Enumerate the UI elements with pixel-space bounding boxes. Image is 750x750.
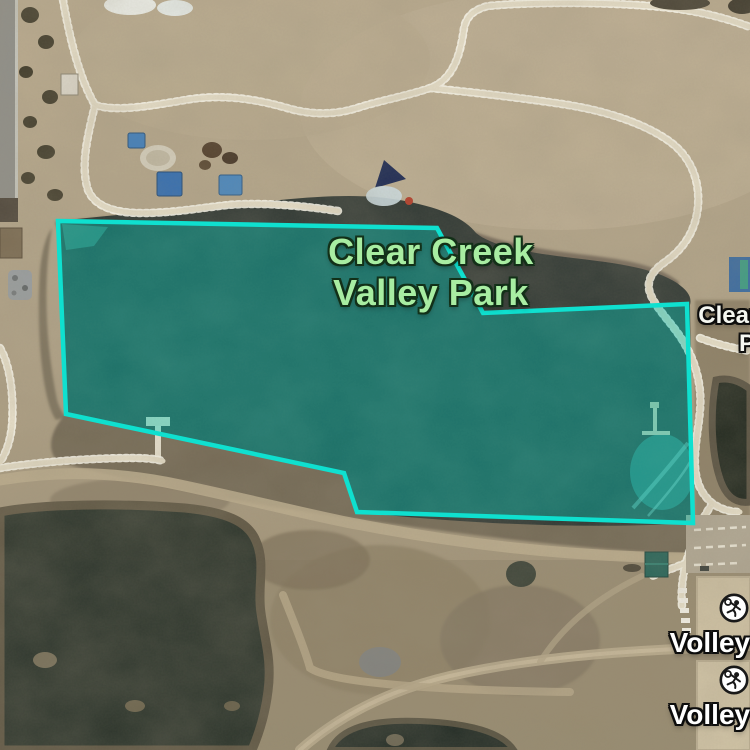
satellite-basemap (0, 0, 750, 750)
poi-label-volleyball-2: Volleyball (670, 699, 750, 731)
poi-label-volleyball-1: Volleyball (670, 627, 750, 659)
volleyball-player-icon[interactable] (718, 664, 750, 696)
satellite-map-canvas[interactable]: Clear Creek Valley Park Clear Creek Park… (0, 0, 750, 750)
volleyball-player-icon[interactable] (718, 592, 750, 624)
